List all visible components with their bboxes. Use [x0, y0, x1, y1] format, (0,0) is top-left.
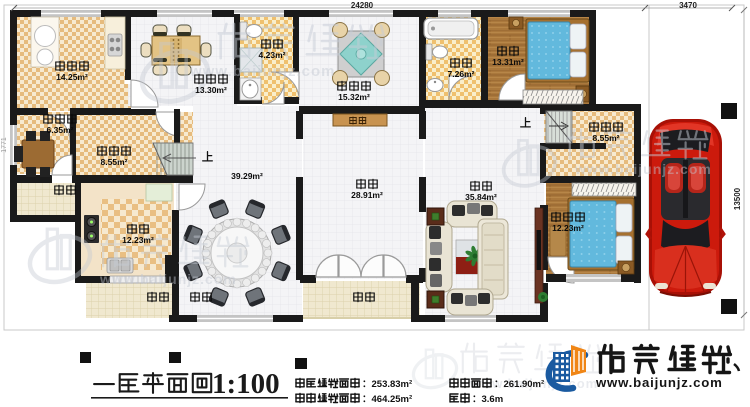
svg-text:：3.6m: ：3.6m	[472, 394, 503, 405]
svg-text:3470: 3470	[679, 1, 697, 10]
svg-text:1771: 1771	[1, 137, 8, 153]
svg-text:12.23m²: 12.23m²	[122, 235, 154, 245]
svg-text:24280: 24280	[351, 1, 374, 10]
svg-text:13500: 13500	[733, 187, 742, 210]
svg-text:8.55m²: 8.55m²	[101, 157, 128, 167]
svg-text:www.baijunjz.com: www.baijunjz.com	[99, 271, 237, 287]
svg-text:：261.90m²: ：261.90m²	[494, 379, 544, 390]
svg-text:4.23m²: 4.23m²	[259, 50, 286, 60]
svg-text:39.29m²: 39.29m²	[231, 171, 263, 181]
svg-text:www.baijunjz.com: www.baijunjz.com	[595, 375, 723, 390]
svg-text:14.25m²: 14.25m²	[56, 72, 88, 82]
svg-text:13.31m²: 13.31m²	[492, 57, 524, 67]
svg-text:13.30m²: 13.30m²	[195, 85, 227, 95]
svg-text:15.32m²: 15.32m²	[338, 92, 370, 102]
svg-text:8.55m²: 8.55m²	[593, 133, 620, 143]
svg-text:28.91m²: 28.91m²	[351, 190, 383, 200]
svg-text:：253.83m²: ：253.83m²	[362, 379, 412, 390]
svg-text:12.23m²: 12.23m²	[552, 223, 584, 233]
svg-text:35.84m²: 35.84m²	[465, 192, 497, 202]
svg-text:1:100: 1:100	[212, 368, 280, 400]
svg-text:6.35m²: 6.35m²	[47, 125, 74, 135]
svg-text:：464.25m²: ：464.25m²	[362, 394, 412, 405]
svg-text:www.baijunjz.com: www.baijunjz.com	[574, 161, 712, 177]
svg-text:7.26m²: 7.26m²	[448, 69, 475, 79]
